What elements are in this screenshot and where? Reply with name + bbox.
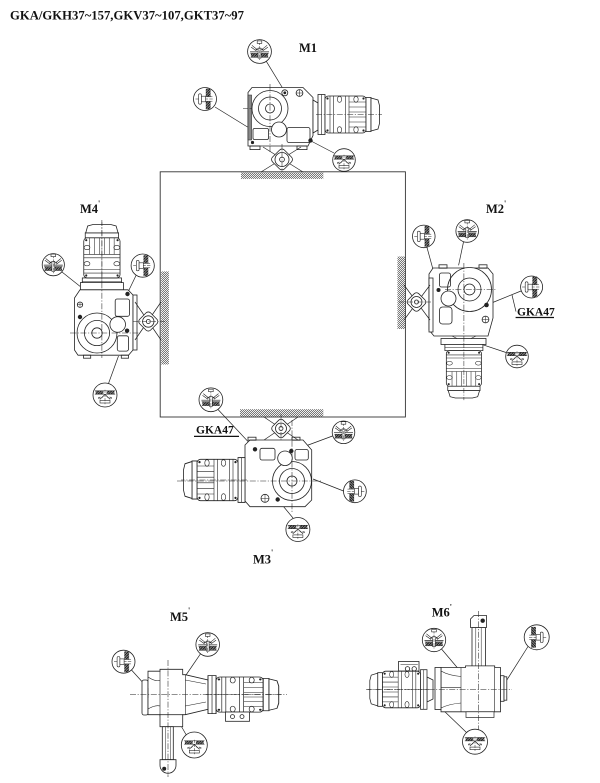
svg-text:M6: M6 — [432, 606, 450, 620]
svg-text:M2: M2 — [486, 202, 504, 216]
svg-text:': ' — [271, 548, 273, 557]
svg-text:M4: M4 — [80, 202, 99, 216]
svg-text:GKA/GKH37~157,GKV37~107,GKT37~: GKA/GKH37~157,GKV37~107,GKT37~97 — [10, 9, 245, 23]
svg-text:GKA47: GKA47 — [196, 425, 234, 437]
svg-text:': ' — [504, 199, 506, 208]
svg-text:': ' — [450, 603, 452, 612]
svg-text:GKA47: GKA47 — [517, 307, 555, 319]
svg-text:M3: M3 — [253, 553, 271, 567]
svg-text:': ' — [188, 606, 190, 615]
svg-text:M1: M1 — [299, 41, 317, 55]
svg-text:M5: M5 — [170, 610, 188, 624]
svg-text:': ' — [98, 199, 100, 208]
